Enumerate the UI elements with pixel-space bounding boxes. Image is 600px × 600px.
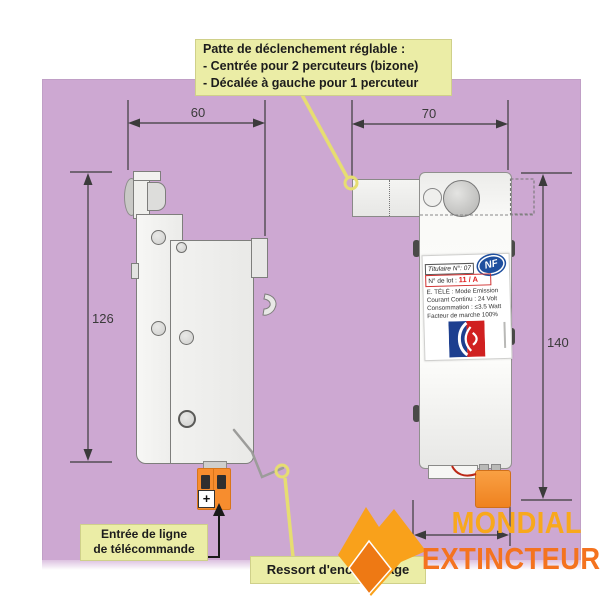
callout-telecommande-line: Entrée de ligne: [81, 527, 207, 542]
polarity-plus-label: +: [198, 490, 215, 508]
brand-name-line1: MONDIAL: [420, 505, 582, 541]
release-bracket: [352, 179, 422, 217]
screw-hole: [151, 230, 166, 245]
callout-telecommande-line: de télécommande: [81, 542, 207, 557]
callout-top-line: - Décalée à gauche pour 1 percuteur: [203, 75, 451, 92]
lot-label: N° de lot :: [428, 277, 457, 285]
dimension-value-140: 140: [547, 335, 581, 350]
bracket-dotted-divider: [389, 180, 390, 216]
callout-top-line: Patte de déclenchement réglable :: [203, 41, 451, 58]
label-brand-mark: [448, 321, 485, 358]
screw-hole-ringed: [178, 410, 196, 428]
label-spec-line: Facteur de marche 100%: [427, 311, 498, 321]
brand-name-line2: EXTINCTEUR: [422, 541, 597, 577]
nf-product-label: Titulaire N°: 07 NF N° de lot : 11 / A E…: [422, 253, 513, 361]
dimension-value-60: 60: [183, 105, 213, 120]
left-device-top-flange: [133, 171, 161, 181]
screw-hole: [179, 330, 194, 345]
lot-value: 11 / A: [459, 275, 479, 285]
left-device-body: [170, 240, 254, 464]
callout-top-box: Patte de déclenchement réglable : - Cent…: [195, 39, 452, 96]
diagram-canvas: + Titulaire N°: 07 NF N° de lot : 11 / A…: [0, 0, 600, 600]
callout-telecommande-box: Entrée de ligne de télécommande: [80, 524, 208, 561]
dimension-value-126: 126: [92, 311, 126, 326]
right-bottom-bracket: [428, 465, 478, 479]
callout-ressort-box: Ressort d'encliquetage: [250, 556, 426, 584]
callout-top-line: - Centrée pour 2 percuteurs (bizone): [203, 58, 451, 75]
right-connector: [475, 470, 511, 508]
lot-number-box: N° de lot : 11 / A: [425, 273, 491, 287]
label-microtext-strip: [503, 322, 505, 348]
connector-slot: [217, 475, 226, 489]
striker-knob-large: [443, 180, 480, 217]
left-device-notch: [131, 263, 139, 279]
left-device-roller-knob: [147, 182, 166, 211]
striker-knob-small: [423, 188, 442, 207]
left-device-side-clip: [251, 238, 268, 278]
connector-slot: [201, 475, 210, 489]
screw-hole: [176, 242, 187, 253]
dimension-value-70: 70: [414, 106, 444, 121]
telecommande-connector: +: [197, 468, 231, 510]
screw-hole: [151, 321, 166, 336]
